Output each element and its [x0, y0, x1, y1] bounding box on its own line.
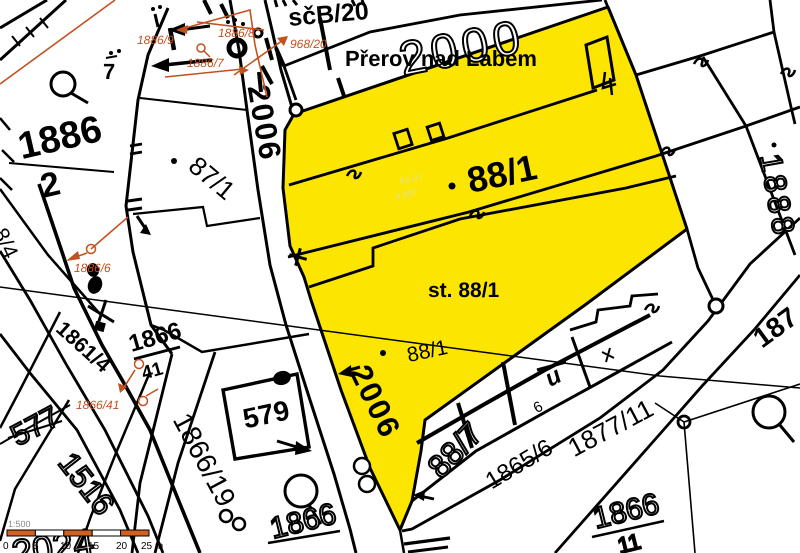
svg-text:5: 5	[33, 541, 39, 552]
svg-text:st. 88/1: st. 88/1	[428, 279, 500, 302]
svg-text:7: 7	[103, 59, 115, 84]
svg-text:1886/8: 1886/8	[218, 26, 255, 40]
svg-text:25 m: 25 m	[141, 541, 163, 552]
svg-text:1886/9: 1886/9	[137, 33, 174, 47]
svg-text:0: 0	[3, 541, 9, 552]
svg-text:10: 10	[60, 541, 72, 552]
svg-text:15: 15	[88, 541, 100, 552]
svg-text:Přerov nad Labem: Přerov nad Labem	[345, 46, 537, 71]
svg-text:968/20: 968/20	[290, 37, 327, 51]
svg-text:1886/7: 1886/7	[187, 56, 225, 70]
svg-text:1866/41: 1866/41	[76, 398, 119, 412]
svg-text:20: 20	[116, 541, 128, 552]
svg-text:1886/6: 1886/6	[74, 261, 111, 275]
svg-text:1:500: 1:500	[8, 519, 31, 529]
